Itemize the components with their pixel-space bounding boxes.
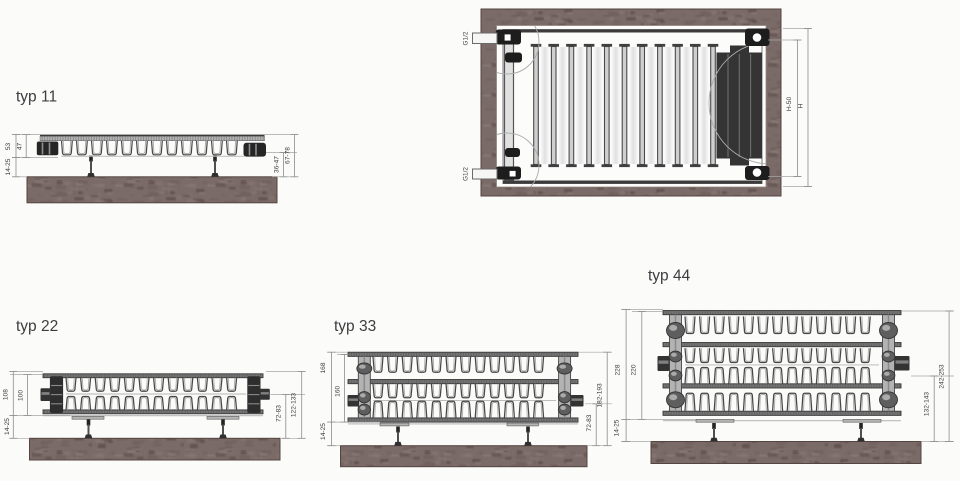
svg-text:14-25: 14-25 — [5, 158, 12, 175]
svg-text:typ 44: typ 44 — [648, 268, 691, 285]
svg-text:typ 33: typ 33 — [334, 318, 376, 335]
svg-text:14-25: 14-25 — [320, 423, 327, 440]
svg-text:14-25: 14-25 — [4, 418, 11, 435]
svg-text:182-193: 182-193 — [597, 383, 604, 408]
svg-text:47: 47 — [16, 143, 23, 151]
svg-text:typ 11: typ 11 — [16, 89, 57, 106]
svg-text:108: 108 — [2, 389, 9, 400]
svg-text:G1/2: G1/2 — [463, 31, 470, 45]
svg-text:67-78: 67-78 — [285, 147, 292, 164]
svg-text:H: H — [798, 103, 805, 108]
svg-text:53: 53 — [5, 143, 12, 151]
svg-text:132-143: 132-143 — [924, 392, 931, 417]
svg-text:G1/2: G1/2 — [463, 167, 470, 181]
svg-text:100: 100 — [18, 390, 25, 401]
svg-text:72-83: 72-83 — [276, 405, 283, 422]
svg-text:168: 168 — [320, 362, 327, 373]
svg-text:36-47: 36-47 — [273, 156, 280, 173]
svg-text:122-133: 122-133 — [291, 393, 298, 418]
svg-text:72-83: 72-83 — [586, 414, 593, 431]
svg-text:220: 220 — [630, 364, 637, 375]
svg-text:160: 160 — [335, 385, 342, 396]
svg-text:H-50: H-50 — [786, 97, 793, 112]
svg-text:14-25: 14-25 — [614, 419, 621, 436]
svg-text:242-253: 242-253 — [939, 364, 946, 389]
svg-text:typ 22: typ 22 — [16, 318, 58, 335]
svg-text:228: 228 — [615, 364, 622, 375]
